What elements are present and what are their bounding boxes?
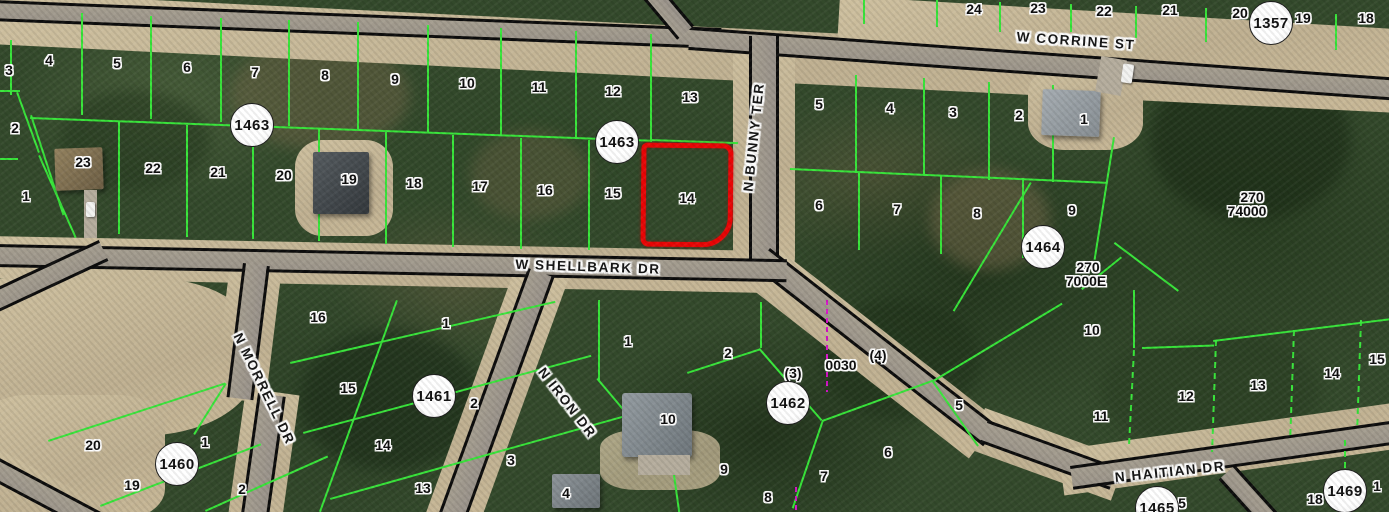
plat-block-marker[interactable]: 1464	[1021, 225, 1065, 269]
plat-block-marker[interactable]: 1465	[1135, 486, 1179, 512]
plat-block-marker[interactable]: 1357	[1249, 1, 1293, 45]
map-canvas[interactable]: 3456789101112132123222120191817161514242…	[0, 0, 1389, 512]
plat-block-marker[interactable]: 1463	[595, 120, 639, 164]
plat-markers-layer: 146314631357146414611462146014691465	[0, 0, 1389, 512]
plat-block-marker[interactable]: 1462	[766, 381, 810, 425]
plat-block-marker[interactable]: 1463	[230, 103, 274, 147]
plat-block-marker[interactable]: 1461	[412, 374, 456, 418]
plat-block-marker[interactable]: 1460	[155, 442, 199, 486]
plat-block-marker[interactable]: 1469	[1323, 469, 1367, 512]
